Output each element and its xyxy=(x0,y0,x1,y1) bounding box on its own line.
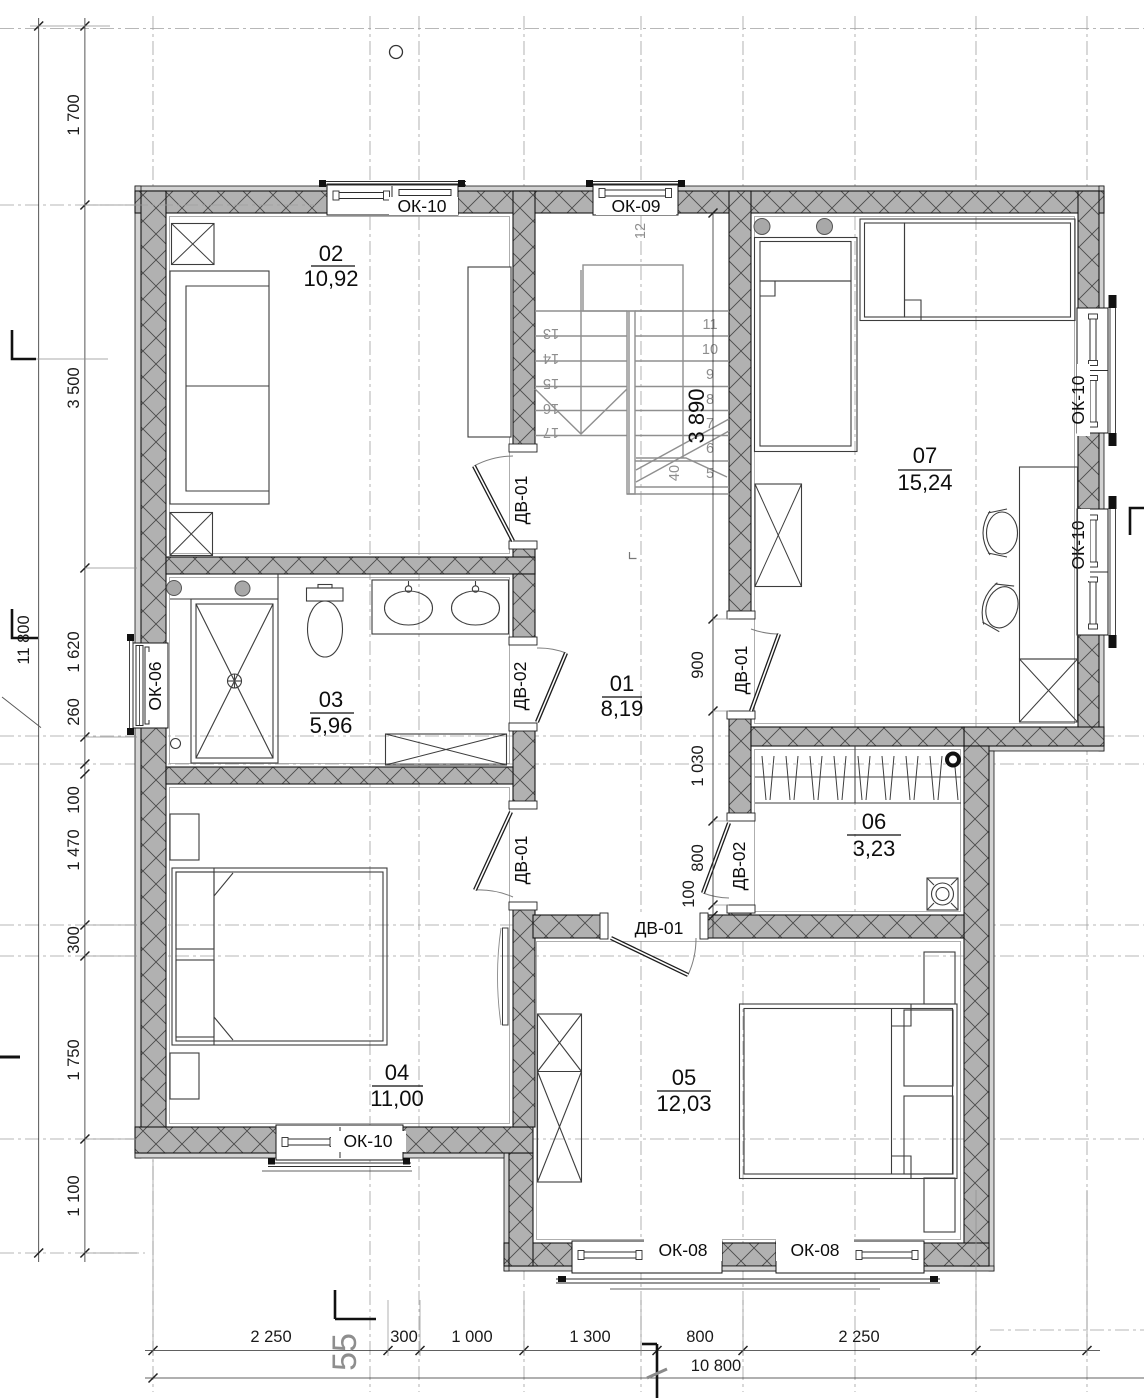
svg-text:11: 11 xyxy=(702,317,717,333)
svg-text:03: 03 xyxy=(319,687,343,712)
svg-text:02: 02 xyxy=(319,241,343,266)
svg-text:04: 04 xyxy=(385,1060,409,1085)
svg-text:14: 14 xyxy=(543,350,559,366)
svg-text:17: 17 xyxy=(543,424,559,440)
svg-text:11 800: 11 800 xyxy=(15,615,33,664)
svg-text:12,03: 12,03 xyxy=(656,1091,711,1116)
svg-text:1 750: 1 750 xyxy=(65,1039,83,1080)
svg-text:100: 100 xyxy=(65,786,83,814)
svg-text:ОК-10: ОК-10 xyxy=(1068,375,1088,424)
svg-text:1 030: 1 030 xyxy=(689,745,707,786)
svg-text:900: 900 xyxy=(689,651,707,679)
svg-text:300: 300 xyxy=(390,1328,418,1346)
svg-text:3 890: 3 890 xyxy=(684,388,709,443)
svg-text:1 100: 1 100 xyxy=(65,1175,83,1216)
svg-text:ОК-08: ОК-08 xyxy=(790,1240,839,1260)
svg-text:ДВ-02: ДВ-02 xyxy=(729,842,749,891)
svg-text:12: 12 xyxy=(633,223,649,239)
svg-text:3,23: 3,23 xyxy=(853,836,896,861)
svg-text:1 300: 1 300 xyxy=(569,1328,610,1346)
svg-text:5,96: 5,96 xyxy=(310,713,353,738)
svg-text:ДВ-01: ДВ-01 xyxy=(731,646,751,695)
svg-text:1 470: 1 470 xyxy=(65,829,83,870)
svg-text:1 620: 1 620 xyxy=(65,631,83,672)
svg-text:40: 40 xyxy=(667,465,683,481)
svg-text:ОК-10: ОК-10 xyxy=(343,1131,392,1151)
svg-text:16: 16 xyxy=(543,400,559,416)
svg-text:10: 10 xyxy=(702,342,718,358)
svg-text:ОК-06: ОК-06 xyxy=(145,661,165,710)
svg-text:300: 300 xyxy=(65,926,83,954)
svg-text:260: 260 xyxy=(65,698,83,726)
svg-text:800: 800 xyxy=(689,844,707,872)
svg-text:15,24: 15,24 xyxy=(897,470,952,495)
svg-text:1 700: 1 700 xyxy=(65,94,83,135)
svg-text:2 250: 2 250 xyxy=(838,1328,879,1346)
svg-text:8,19: 8,19 xyxy=(601,696,644,721)
svg-text:07: 07 xyxy=(913,443,937,468)
svg-text:ДВ-01: ДВ-01 xyxy=(511,836,531,885)
svg-text:10 800: 10 800 xyxy=(691,1357,741,1375)
svg-text:10,92: 10,92 xyxy=(303,266,358,291)
svg-text:06: 06 xyxy=(862,809,886,834)
svg-text:ОК-10: ОК-10 xyxy=(397,196,446,216)
svg-text:05: 05 xyxy=(672,1065,696,1090)
svg-text:2 250: 2 250 xyxy=(250,1328,291,1346)
svg-text:01: 01 xyxy=(610,671,634,696)
svg-text:13: 13 xyxy=(543,325,559,341)
svg-text:ОК-09: ОК-09 xyxy=(611,196,660,216)
svg-text:3 500: 3 500 xyxy=(65,367,83,408)
svg-text:ДВ-01: ДВ-01 xyxy=(511,476,531,525)
svg-text:1 000: 1 000 xyxy=(451,1328,492,1346)
svg-text:100: 100 xyxy=(680,880,698,908)
svg-text:11,00: 11,00 xyxy=(370,1086,423,1111)
svg-text:ДВ-01: ДВ-01 xyxy=(635,918,684,938)
svg-text:800: 800 xyxy=(686,1328,714,1346)
svg-text:ОК-08: ОК-08 xyxy=(658,1240,707,1260)
svg-text:ДВ-02: ДВ-02 xyxy=(510,662,530,711)
svg-text:15: 15 xyxy=(543,375,559,391)
svg-text:55: 55 xyxy=(326,1333,364,1371)
